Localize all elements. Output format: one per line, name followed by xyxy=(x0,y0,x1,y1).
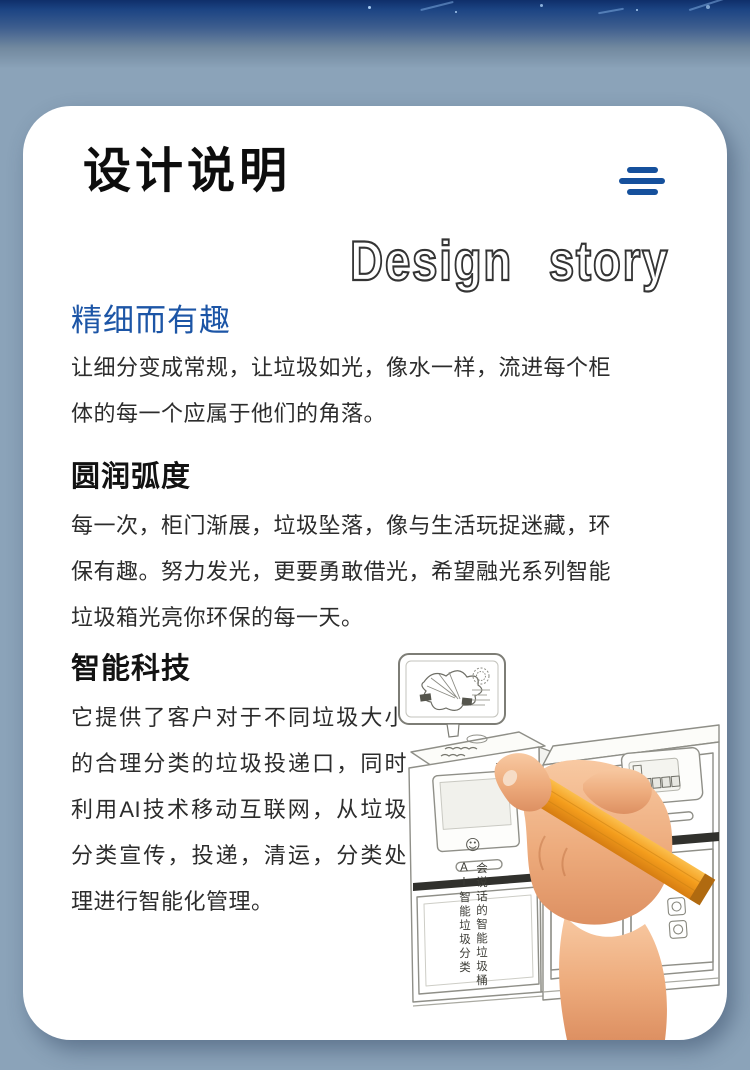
sparkle-dot xyxy=(540,4,543,7)
light-streak xyxy=(598,8,624,14)
sign-board xyxy=(399,654,505,737)
section-body-rounded-arc: 每一次，柜门渐展，垃圾坠落，像与生活玩捉迷藏，环保有趣。努力发光，更要勇敢借光，… xyxy=(71,503,611,641)
sparkle-dot xyxy=(368,6,371,9)
section-heading-fine-and-fun: 精细而有趣 xyxy=(71,303,231,339)
menu-bar xyxy=(619,178,665,184)
sparkle-dot xyxy=(455,11,457,13)
section-heading-rounded-arc: 圆润弧度 xyxy=(71,461,191,494)
smiley-face-icon: ☺ xyxy=(465,838,481,853)
subtitle-outline-text: Design story xyxy=(350,230,669,292)
design-story-card: 设计说明 Design story 精细而有趣 让细分变成常规，让垃圾如光，像水… xyxy=(23,106,727,1040)
hamburger-menu-icon[interactable] xyxy=(619,167,665,195)
section-heading-smart-tech: 智能科技 xyxy=(71,653,191,686)
sketch-illustration: ☺ 会说话的智能垃圾桶 AI智能垃圾分类 xyxy=(377,640,727,1040)
page-title: 设计说明 xyxy=(83,146,291,199)
light-streak xyxy=(420,1,453,11)
menu-bar xyxy=(627,189,658,195)
section-body-smart-tech: 它提供了客户对于不同垃圾大小的合理分类的垃圾投递口，同时利用AI技术移动互联网，… xyxy=(71,695,407,925)
bin-vertical-labels: 会说话的智能垃圾桶 AI智能垃圾分类 xyxy=(455,862,489,1037)
sparkle-dot xyxy=(636,9,638,11)
menu-bar xyxy=(627,167,658,173)
bin-label-right: 会说话的智能垃圾桶 xyxy=(472,862,489,1037)
sparkle-dot xyxy=(706,5,710,9)
smart-bins-sketch xyxy=(377,640,727,1040)
bin-label-left: AI智能垃圾分类 xyxy=(455,862,472,1037)
top-water-band xyxy=(0,0,750,80)
section-body-fine-and-fun: 让细分变成常规，让垃圾如光，像水一样，流进每个柜体的每一个应属于他们的角落。 xyxy=(71,345,611,437)
